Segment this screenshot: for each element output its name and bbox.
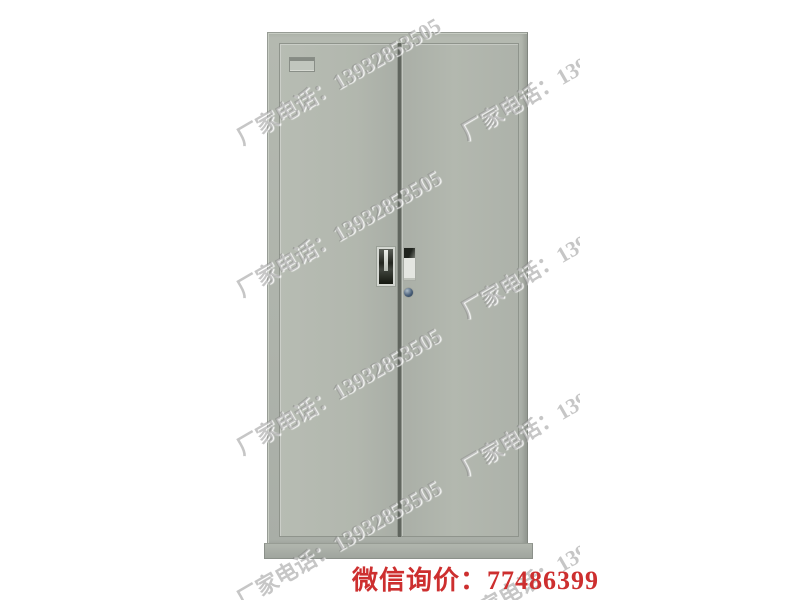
cabinet-doors <box>279 43 519 537</box>
cabinet-door-right <box>401 43 520 537</box>
cabinet-body <box>267 32 528 545</box>
cabinet-base <box>264 543 533 559</box>
wechat-price-text: 微信询价：77486399 <box>352 560 599 597</box>
keyhole-lock <box>404 288 413 297</box>
product-photo: 厂家电话：13932853505 厂家电话：13932853505 厂家电话：1… <box>0 0 800 600</box>
right-door-handle <box>403 247 416 281</box>
cabinet-door-left <box>279 43 398 537</box>
left-door-handle <box>377 247 395 286</box>
vent-slot <box>289 57 315 72</box>
